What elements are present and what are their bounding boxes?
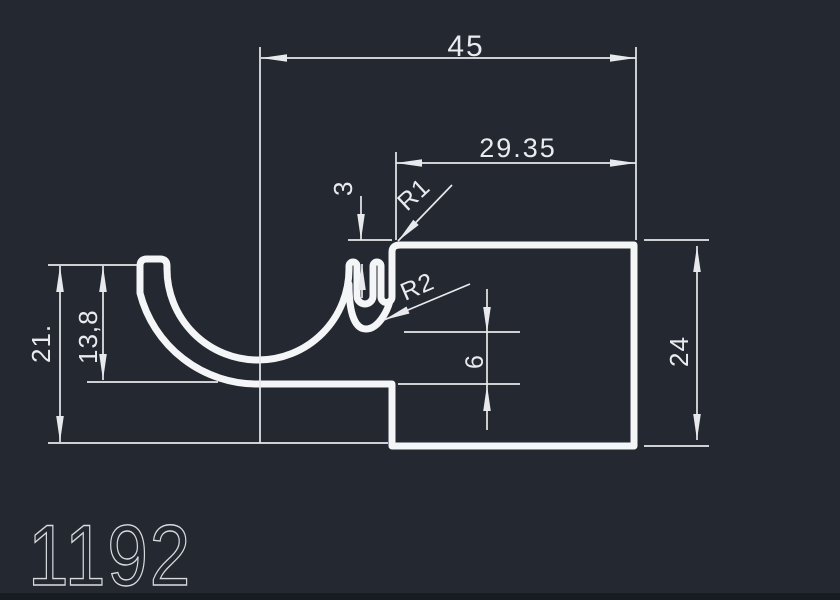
dim-label-right-height: 24: [664, 336, 694, 367]
dim-label-right-width: 29.35: [479, 133, 557, 163]
arrowhead-21-bottom-icon: [56, 416, 64, 442]
arrowhead-6-top-icon: [483, 307, 491, 333]
arrowhead-2935-left-icon: [396, 159, 422, 167]
arrowhead-3-upper-icon: [357, 214, 365, 240]
part-number-label: 1192: [28, 507, 192, 600]
arrowhead-45-right-icon: [610, 54, 636, 62]
profile-main-path: [140, 245, 634, 446]
dim-label-wall-thickness: 3: [328, 182, 358, 196]
drawing-viewport: 45 29.35 3 R1 R2 13,8 21. 6 24 1192: [0, 0, 840, 600]
arrowhead-24-top-icon: [693, 246, 701, 272]
dim-label-hook-gap: 6: [461, 355, 489, 369]
cad-canvas[interactable]: 45 29.35 3 R1 R2 13,8 21. 6 24 1192: [0, 0, 840, 600]
arrowhead-6-bottom-icon: [483, 385, 491, 411]
dim-label-total-width: 45: [447, 30, 484, 63]
dim-label-channel-height: 13,8: [73, 309, 103, 364]
dim-label-left-height: 21.: [26, 324, 56, 363]
bottom-edge-strip: [0, 593, 840, 600]
arrowhead-r1-icon: [398, 220, 419, 241]
dimension-labels: 45 29.35 3 R1 R2 13,8 21. 6 24: [26, 30, 694, 369]
dim-label-radius-1: R1: [392, 173, 436, 217]
arrowhead-138-top-icon: [99, 266, 107, 292]
arrowhead-45-left-icon: [261, 54, 287, 62]
arrowhead-21-top-icon: [56, 266, 64, 292]
arrowhead-2935-right-icon: [610, 159, 636, 167]
profile-outline: [140, 245, 634, 446]
arrowhead-24-bottom-icon: [693, 414, 701, 440]
